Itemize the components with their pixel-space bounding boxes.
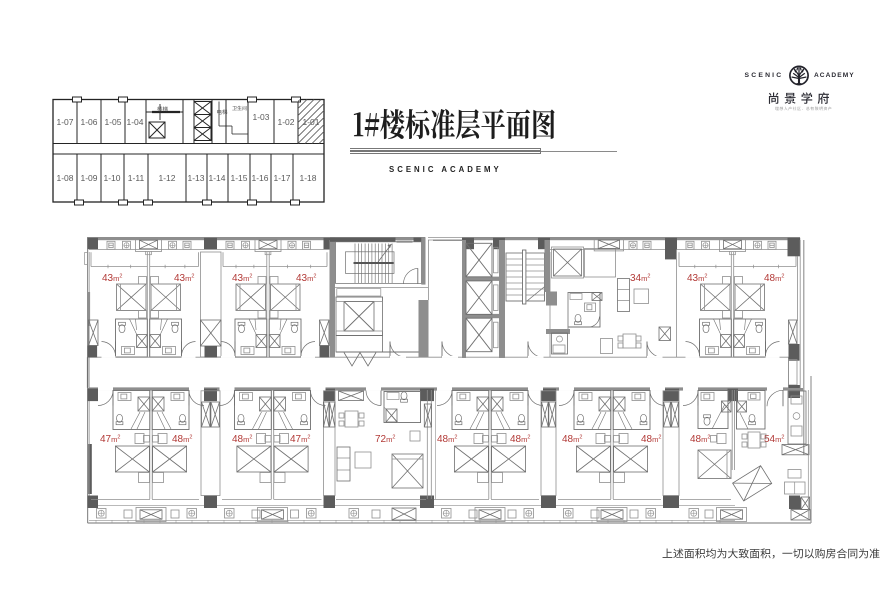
svg-text:34m2: 34m2 [630, 273, 650, 284]
svg-text:72m2: 72m2 [375, 434, 395, 445]
svg-text:48m2: 48m2 [562, 434, 582, 445]
svg-text:48m2: 48m2 [690, 434, 710, 445]
svg-text:48m2: 48m2 [641, 434, 661, 445]
svg-text:47m2: 47m2 [290, 434, 310, 445]
svg-text:43m2: 43m2 [232, 273, 252, 284]
svg-text:48m2: 48m2 [172, 434, 192, 445]
svg-text:48m2: 48m2 [232, 434, 252, 445]
svg-text:43m2: 43m2 [296, 273, 316, 284]
svg-text:43m2: 43m2 [102, 273, 122, 284]
svg-text:48m2: 48m2 [510, 434, 530, 445]
svg-text:43m2: 43m2 [174, 273, 194, 284]
svg-text:48m2: 48m2 [437, 434, 457, 445]
svg-text:47m2: 47m2 [100, 434, 120, 445]
svg-text:43m2: 43m2 [687, 273, 707, 284]
svg-text:48m2: 48m2 [764, 273, 784, 284]
svg-text:54m2: 54m2 [764, 434, 784, 445]
